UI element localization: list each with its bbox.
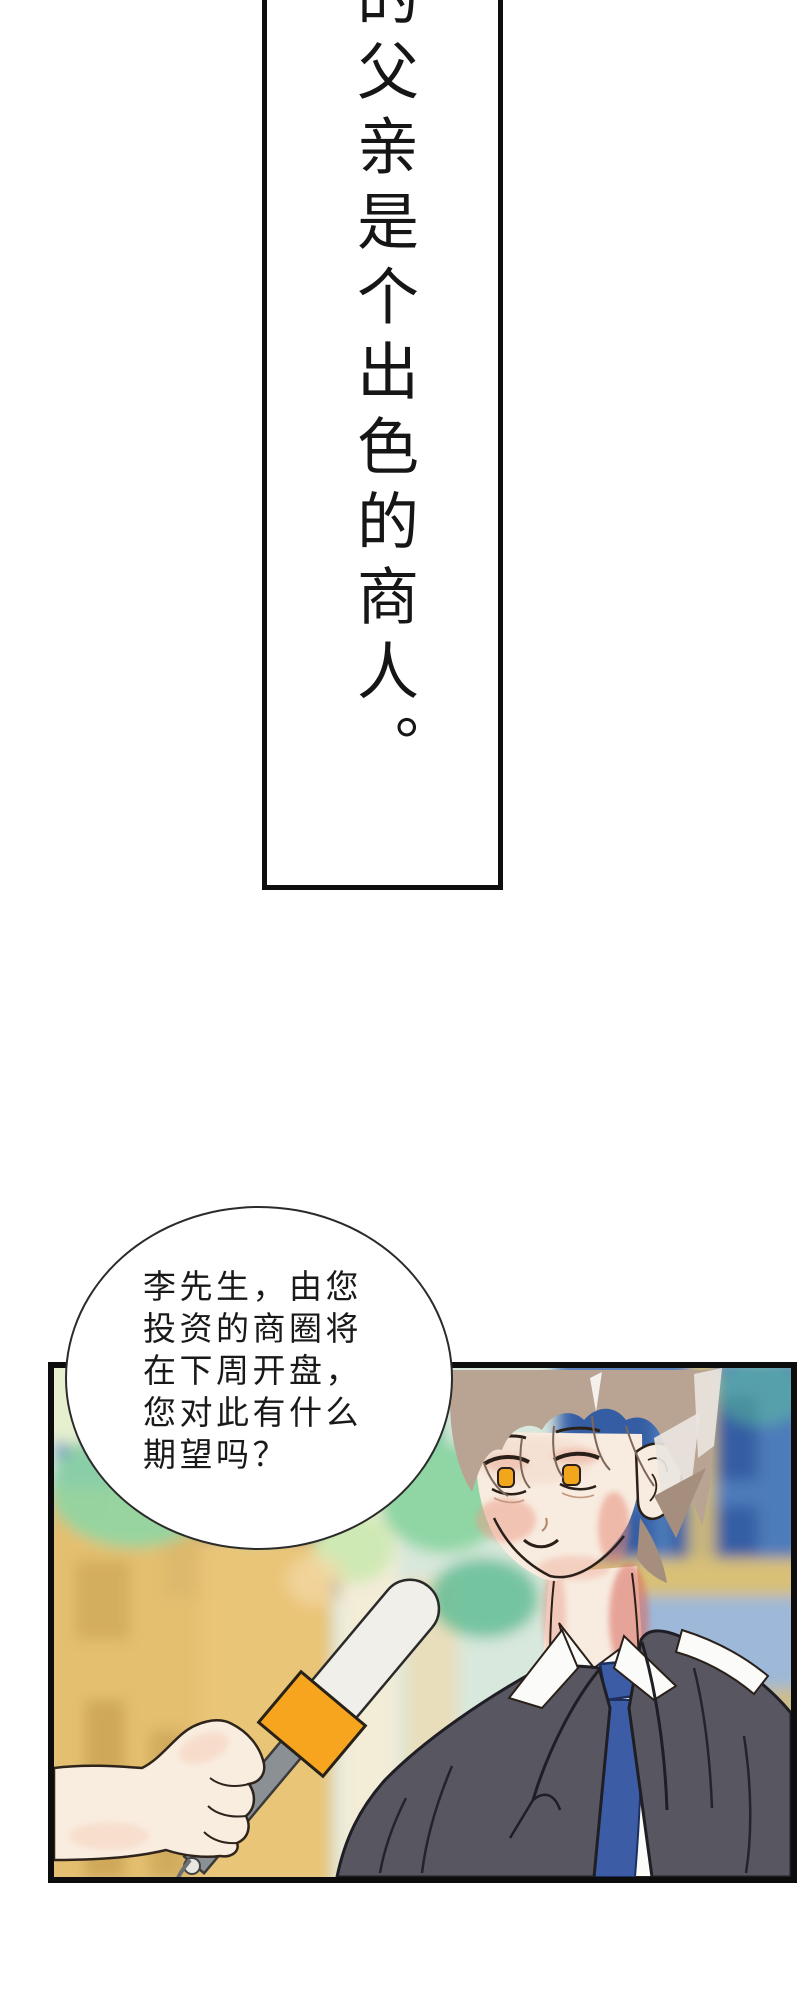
comic-page: 的父亲是个出色的商人。 xyxy=(0,0,800,2000)
narration-vertical-text: 的父亲是个出色的商人。 xyxy=(350,0,415,789)
bubble-line: 期望吗？ xyxy=(143,1434,362,1476)
bubble-line: 投资的商圈将 xyxy=(143,1308,362,1350)
bubble-line: 在下周开盘， xyxy=(143,1350,362,1392)
narration-panel: 的父亲是个出色的商人。 xyxy=(262,0,503,890)
speech-bubble-text: 李先生，由您 投资的商圈将 在下周开盘， 您对此有什么 期望吗？ xyxy=(143,1266,362,1476)
bubble-line: 您对此有什么 xyxy=(143,1392,362,1434)
bubble-line: 李先生，由您 xyxy=(143,1266,362,1308)
